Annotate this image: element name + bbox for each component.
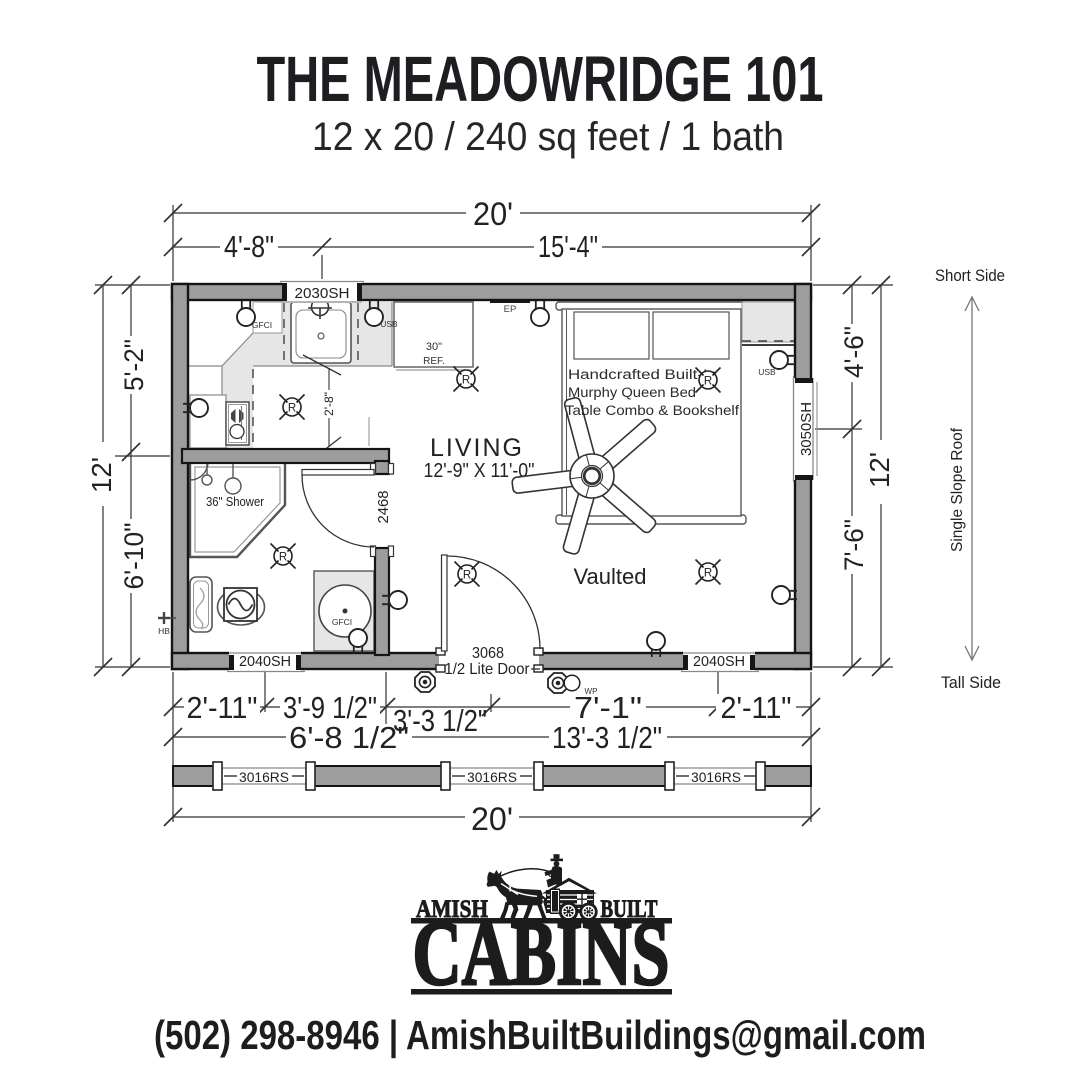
svg-text:THE MEADOWRIDGE 101: THE MEADOWRIDGE 101 [257,43,824,115]
svg-text:1/2 Lite Door: 1/2 Lite Door [445,661,531,678]
svg-text:7'-6": 7'-6" [839,519,869,571]
svg-text:GFCI: GFCI [332,617,352,627]
svg-text:4'-8": 4'-8" [224,229,274,264]
svg-text:Single Slope Roof: Single Slope Roof [949,427,966,552]
svg-text:HB: HB [158,626,170,636]
svg-text:USB: USB [758,367,776,377]
svg-text:EP: EP [504,304,517,315]
svg-text:3'-3 1/2": 3'-3 1/2" [393,703,487,738]
svg-text:2'-11": 2'-11" [721,690,792,725]
svg-text:(502) 298-8946 | AmishBuiltBui: (502) 298-8946 | AmishBuiltBuildings@gma… [154,1012,926,1058]
svg-text:6'-10": 6'-10" [119,523,149,590]
svg-text:Handcrafted Built-In: Handcrafted Built-In [568,367,717,383]
svg-text:4'-6": 4'-6" [839,326,869,378]
svg-text:13'-3 1/2": 13'-3 1/2" [552,720,662,755]
svg-text:REF.: REF. [423,356,445,367]
svg-text:2040SH: 2040SH [239,654,291,670]
svg-text:5'-2": 5'-2" [119,339,149,391]
svg-text:6'-8 1/2": 6'-8 1/2" [289,720,409,755]
svg-text:12': 12' [864,452,895,488]
svg-text:30": 30" [426,341,442,353]
svg-text:Table Combo & Bookshelf: Table Combo & Bookshelf [565,403,739,419]
svg-text:WP: WP [585,687,598,696]
svg-text:12': 12' [86,457,117,493]
svg-text:GFCI: GFCI [252,320,272,330]
svg-text:2468: 2468 [376,491,392,524]
svg-text:LIVING: LIVING [430,434,524,462]
svg-text:3016RS: 3016RS [691,769,741,785]
svg-text:Murphy Queen Bed: Murphy Queen Bed [568,385,696,401]
svg-text:2030SH: 2030SH [295,285,350,302]
svg-text:CABINS: CABINS [413,902,670,1004]
svg-text:15'-4": 15'-4" [538,229,598,264]
svg-text:20': 20' [473,196,513,232]
svg-text:2'-8": 2'-8" [324,392,336,416]
svg-text:3068: 3068 [472,645,504,662]
svg-text:3016RS: 3016RS [239,769,289,785]
svg-text:20': 20' [471,801,513,837]
svg-text:Tall Side: Tall Side [941,673,1001,692]
svg-text:36" Shower: 36" Shower [206,494,265,509]
svg-text:3050SH: 3050SH [798,402,815,456]
svg-text:12 x 20 / 240 sq feet / 1 bath: 12 x 20 / 240 sq feet / 1 bath [312,115,784,159]
svg-text:Vaulted: Vaulted [574,564,647,589]
svg-text:3016RS: 3016RS [467,769,517,785]
svg-text:Short Side: Short Side [935,266,1005,285]
svg-text:2040SH: 2040SH [693,654,745,670]
svg-text:USB: USB [380,319,398,329]
svg-text:2'-11": 2'-11" [187,690,258,725]
